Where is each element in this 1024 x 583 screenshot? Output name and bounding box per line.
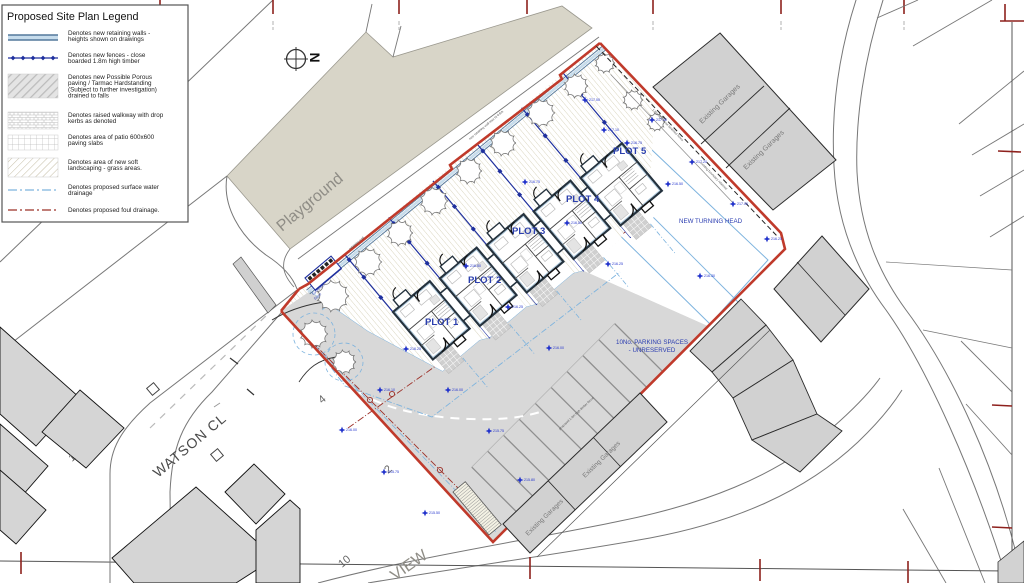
- svg-text:PLOT 2: PLOT 2: [468, 275, 501, 286]
- svg-text:215.50: 215.50: [429, 511, 440, 515]
- svg-text:216.50: 216.50: [470, 264, 481, 268]
- svg-text:217.20: 217.20: [696, 160, 707, 164]
- svg-text:217.40: 217.40: [656, 118, 667, 122]
- svg-text:216.25: 216.25: [512, 305, 523, 309]
- svg-text:10No. PARKING SPACES: 10No. PARKING SPACES: [616, 339, 688, 346]
- svg-text:216.75: 216.75: [631, 141, 642, 145]
- svg-text:216.25: 216.25: [612, 262, 623, 266]
- svg-text:217.00: 217.00: [589, 98, 600, 102]
- svg-text:heights shown on drawings: heights shown on drawings: [68, 36, 144, 43]
- svg-text:216.00: 216.00: [346, 428, 357, 432]
- svg-text:215.75: 215.75: [493, 429, 504, 433]
- svg-text:PLOT 5: PLOT 5: [613, 146, 647, 157]
- svg-text:216.30: 216.30: [704, 274, 715, 278]
- svg-text:- UNRESERVED: - UNRESERVED: [629, 347, 676, 354]
- svg-text:216.50: 216.50: [571, 221, 582, 225]
- svg-text:PLOT 4: PLOT 4: [566, 194, 600, 205]
- svg-text:216.10: 216.10: [384, 388, 395, 392]
- svg-text:Denotes proposed foul drainage: Denotes proposed foul drainage.: [68, 207, 160, 214]
- svg-text:216.75: 216.75: [529, 180, 540, 184]
- svg-text:215.75: 215.75: [388, 470, 399, 474]
- svg-text:216.25: 216.25: [771, 237, 782, 241]
- svg-text:N: N: [307, 53, 323, 63]
- svg-text:215.80: 215.80: [524, 478, 535, 482]
- svg-text:kerbs as denoted: kerbs as denoted: [68, 118, 117, 125]
- svg-text:drainage: drainage: [68, 190, 93, 197]
- svg-text:217.10: 217.10: [608, 128, 619, 132]
- svg-text:PLOT 1: PLOT 1: [425, 317, 459, 328]
- svg-text:217.00: 217.00: [737, 202, 748, 206]
- svg-text:drained to falls: drained to falls: [68, 93, 109, 100]
- svg-text:Proposed Site Plan Legend: Proposed Site Plan Legend: [7, 11, 138, 23]
- svg-text:boarded 1.8m high timber: boarded 1.8m high timber: [68, 58, 140, 65]
- svg-text:landscaping - grass areas.: landscaping - grass areas.: [68, 165, 142, 172]
- svg-text:paving slabs: paving slabs: [68, 140, 103, 147]
- svg-text:216.50: 216.50: [672, 182, 683, 186]
- svg-text:NEW TURNING HEAD: NEW TURNING HEAD: [679, 218, 743, 225]
- svg-text:216.25: 216.25: [410, 347, 421, 351]
- svg-text:216.00: 216.00: [553, 346, 564, 350]
- svg-text:216.00: 216.00: [452, 388, 463, 392]
- svg-text:PLOT 3: PLOT 3: [512, 226, 545, 237]
